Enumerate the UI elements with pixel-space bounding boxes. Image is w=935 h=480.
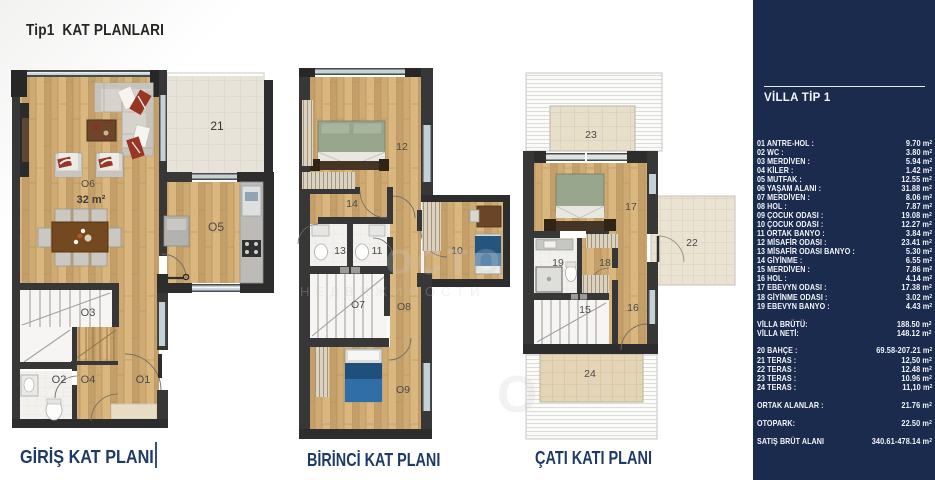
svg-text:осто: осто bbox=[385, 232, 504, 284]
svg-text:НЕДВИЖИМОСТИ: НЕДВИЖИМОСТИ bbox=[300, 284, 485, 299]
svg-text:23: 23 bbox=[585, 129, 597, 141]
svg-text:17: 17 bbox=[625, 201, 637, 213]
svg-text:18: 18 bbox=[599, 257, 611, 269]
svg-text:O1: O1 bbox=[136, 374, 151, 386]
svg-text:21: 21 bbox=[210, 119, 224, 133]
svg-text:O6: O6 bbox=[81, 178, 95, 190]
svg-text:15: 15 bbox=[579, 304, 591, 316]
svg-text:24: 24 bbox=[584, 368, 596, 380]
svg-text:19: 19 bbox=[552, 257, 564, 269]
svg-text:O7: O7 bbox=[351, 299, 365, 311]
svg-text:О: О bbox=[497, 366, 537, 424]
svg-text:22: 22 bbox=[686, 237, 698, 249]
svg-text:O5: O5 bbox=[208, 220, 224, 234]
svg-text:32 m²: 32 m² bbox=[77, 194, 106, 206]
svg-text:O9: O9 bbox=[396, 384, 410, 396]
svg-text:O4: O4 bbox=[81, 374, 96, 386]
svg-text:16: 16 bbox=[627, 302, 639, 314]
svg-text:O8: O8 bbox=[397, 301, 411, 313]
svg-text:14: 14 bbox=[346, 198, 358, 210]
svg-text:11: 11 bbox=[372, 245, 383, 257]
svg-text:O3: O3 bbox=[81, 307, 96, 319]
svg-text:O2: O2 bbox=[52, 374, 67, 386]
svg-text:12: 12 bbox=[396, 141, 408, 153]
svg-text:13: 13 bbox=[334, 245, 346, 257]
